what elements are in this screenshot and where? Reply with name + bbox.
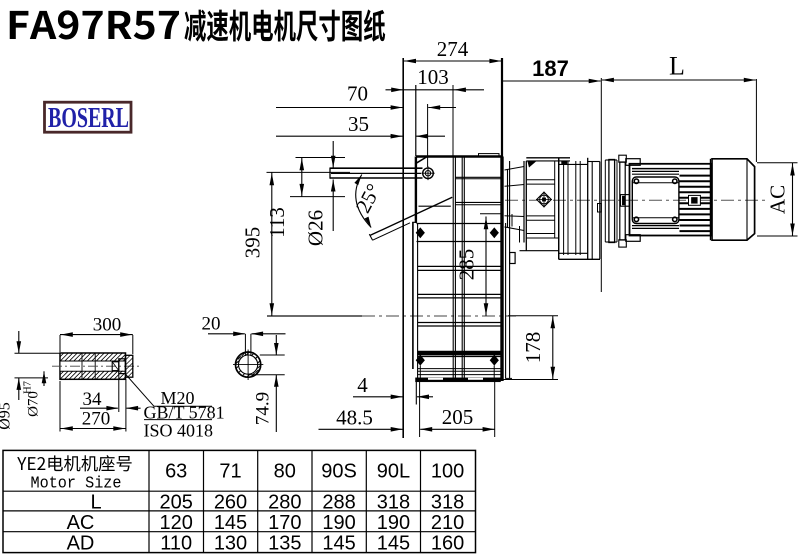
svg-text:270: 270 (82, 409, 111, 430)
svg-text:318: 318 (431, 492, 464, 514)
svg-text:35: 35 (348, 112, 369, 136)
svg-text:ISO 4018: ISO 4018 (144, 421, 214, 441)
svg-text:L: L (669, 52, 685, 81)
svg-text:Ø70: Ø70 (26, 391, 42, 417)
svg-text:GB/T 5781: GB/T 5781 (144, 402, 225, 422)
svg-text:AC: AC (766, 185, 790, 214)
svg-text:170: 170 (268, 512, 301, 534)
svg-text:L: L (90, 492, 101, 514)
svg-text:110: 110 (160, 532, 192, 554)
svg-text:H7: H7 (23, 381, 34, 394)
svg-text:AC: AC (67, 512, 95, 534)
svg-text:288: 288 (322, 492, 355, 514)
svg-text:280: 280 (268, 492, 301, 514)
svg-text:4: 4 (357, 373, 368, 397)
svg-text:145: 145 (214, 512, 247, 534)
svg-text:Ø26: Ø26 (304, 210, 328, 246)
svg-text:205: 205 (160, 492, 193, 514)
svg-text:178: 178 (521, 332, 545, 364)
svg-text:274: 274 (437, 37, 469, 61)
svg-text:135: 135 (268, 532, 301, 554)
svg-text:318: 318 (377, 492, 410, 514)
svg-text:145: 145 (322, 532, 355, 554)
svg-text:AD: AD (67, 532, 95, 554)
svg-text:395: 395 (241, 227, 265, 259)
svg-text:71: 71 (219, 461, 241, 483)
svg-text:63: 63 (165, 461, 187, 483)
svg-text:190: 190 (322, 512, 355, 534)
svg-text:130: 130 (214, 532, 247, 554)
svg-text:34: 34 (83, 389, 103, 410)
svg-text:103: 103 (417, 65, 449, 89)
svg-text:BOSERL: BOSERL (48, 103, 129, 134)
svg-text:100: 100 (431, 461, 464, 483)
svg-text:285: 285 (455, 249, 479, 281)
svg-text:113: 113 (265, 207, 289, 238)
svg-text:20: 20 (202, 313, 221, 334)
svg-text:260: 260 (214, 492, 247, 514)
svg-text:205: 205 (442, 405, 474, 429)
svg-text:160: 160 (431, 532, 464, 554)
svg-text:90S: 90S (321, 461, 357, 483)
svg-text:70: 70 (347, 81, 368, 105)
svg-text:90L: 90L (377, 461, 410, 483)
svg-text:187: 187 (532, 56, 569, 81)
svg-text:300: 300 (93, 314, 122, 335)
svg-text:48.5: 48.5 (336, 406, 373, 430)
svg-text:80: 80 (274, 461, 296, 483)
svg-text:120: 120 (160, 512, 193, 534)
svg-text:210: 210 (431, 512, 464, 534)
svg-text:190: 190 (377, 512, 410, 534)
svg-text:Ø95: Ø95 (0, 402, 14, 430)
svg-text:Motor Size: Motor Size (31, 474, 122, 493)
svg-text:145: 145 (377, 532, 410, 554)
svg-text:74.9: 74.9 (253, 392, 274, 425)
